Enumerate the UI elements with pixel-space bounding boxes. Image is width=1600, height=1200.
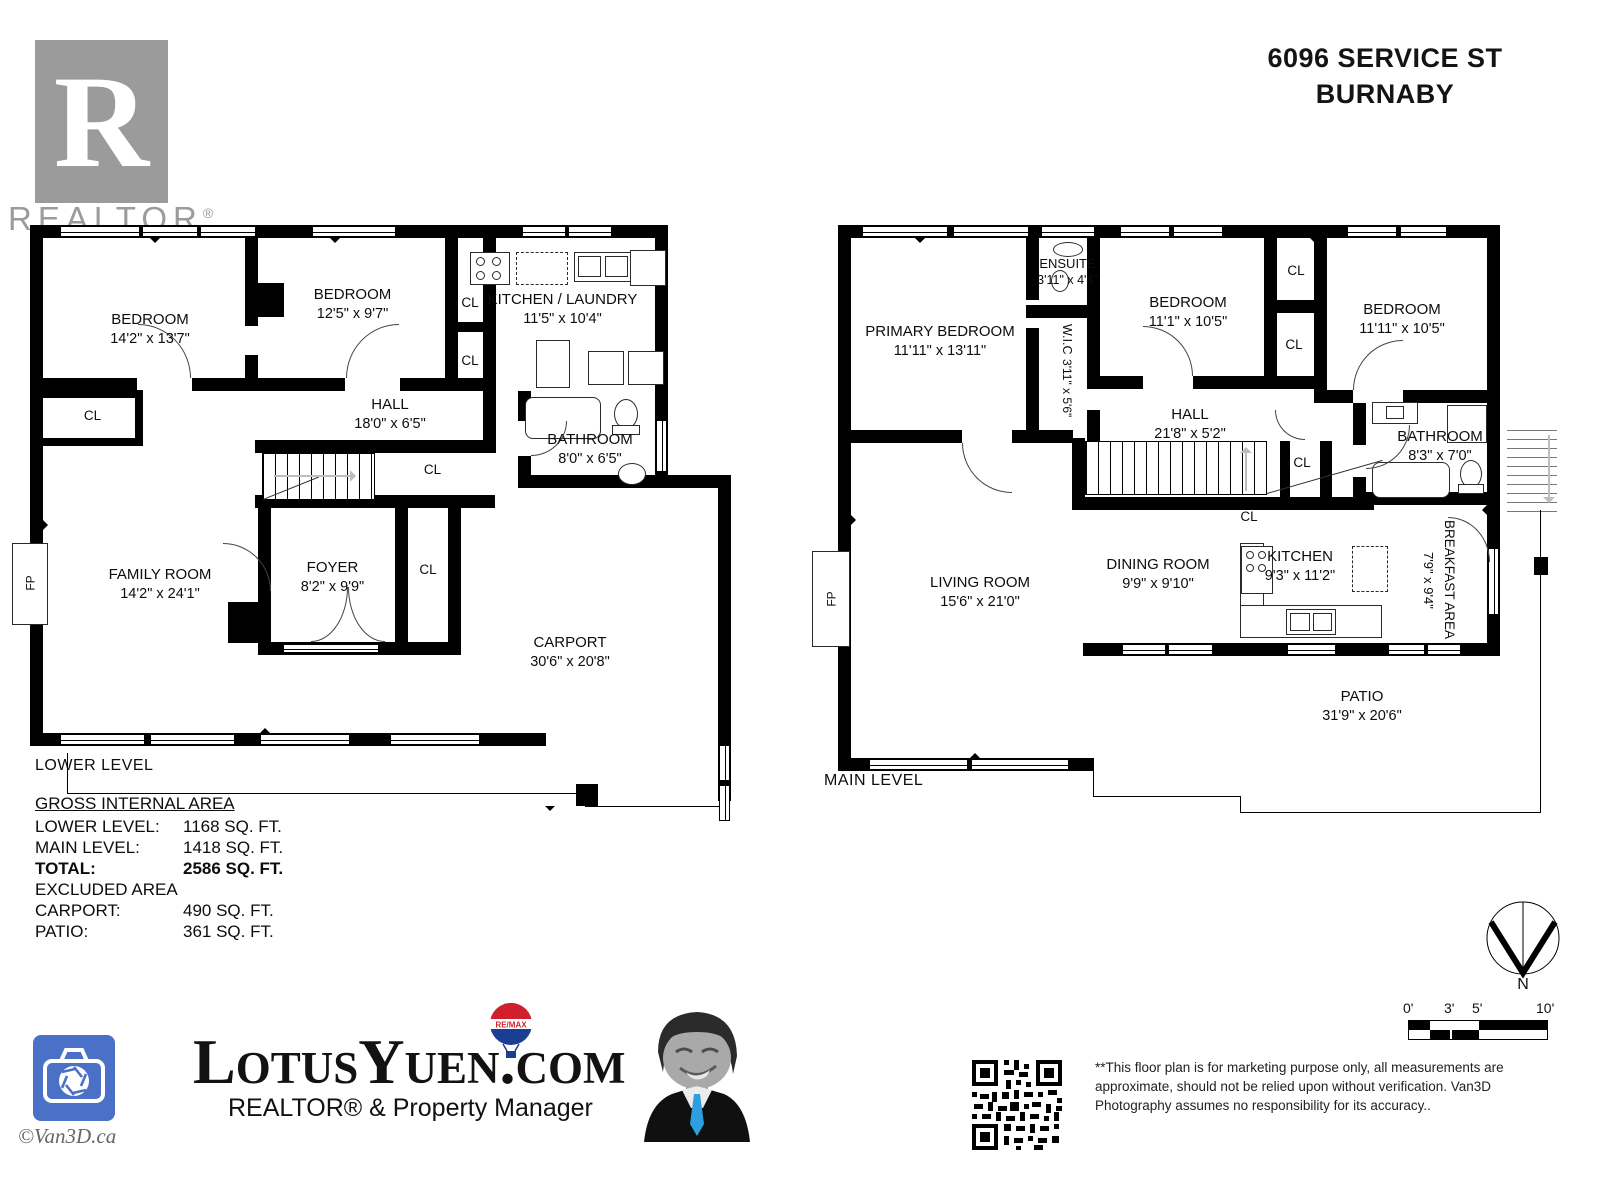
dimension-mark [43,520,53,530]
dimension-mark [851,515,861,525]
dimension-mark [915,238,925,248]
room-dims: 8'0" x 6'5" [520,450,660,469]
room-dims: 31'9" x 20'6" [1272,707,1452,726]
wall [1087,376,1143,389]
door-arc [1143,326,1193,376]
slab-outline [585,806,719,807]
remax-balloon-icon: RE/MAX [488,1002,534,1060]
room-dims: 30'6" x 20'8" [495,653,645,672]
door-arc [1353,340,1403,390]
washer [588,351,624,385]
stair-direction-arrow [1548,435,1550,497]
room-name: BATHROOM [1350,427,1530,447]
area-label: TOTAL: [35,858,183,879]
dimension-mark [545,806,555,816]
realtor-portrait [636,1008,758,1142]
room-name: ENSUITE [1020,255,1115,272]
window [1388,644,1425,655]
closet-wall [43,390,143,398]
window [312,226,396,237]
sink-basin [1386,406,1404,419]
area-row: LOWER LEVEL:1168 SQ. FT. [35,816,283,837]
registered-icon: ® [203,205,213,221]
scale-bar: 0' 3' 5' 10' [1408,1000,1558,1046]
stair-arrow-head [350,470,362,482]
room-name: HALL [325,395,455,415]
wall [1087,410,1100,443]
window [719,785,730,821]
window [1041,226,1095,237]
area-summary-heading: GROSS INTERNAL AREA [35,793,283,814]
window [200,226,256,237]
window [953,226,1029,237]
room-label-hall: HALL 21'8" x 5'2" [1105,405,1275,444]
fireplace: FP [12,543,48,625]
stair-direction-arrow [1245,449,1247,491]
wall-pillar [228,602,265,643]
dryer [628,351,664,385]
room-label-bathroom: BATHROOM 8'3" x 7'0" [1350,427,1530,466]
compass-rose [1481,898,1565,982]
patio-outline [1240,796,1241,813]
window [869,759,968,770]
logo-part-lotus: Lotus [193,1026,358,1097]
lower-level-caption: LOWER LEVEL [35,757,153,775]
room-name: CARPORT [495,633,645,653]
burner [492,257,501,266]
room-name: HALL [1105,405,1275,425]
room-dims: 12'5" x 9'7" [275,305,430,324]
closet-label: CL [403,562,453,577]
door-arc [346,324,399,378]
closet-wall [43,438,143,446]
area-row: CARPORT:490 SQ. FT. [35,900,283,921]
window [862,226,948,237]
disclaimer-text: **This floor plan is for marketing purpo… [1095,1058,1519,1115]
room-dims: 11'5" x 10'4" [455,310,670,329]
room-dims: 11'11" x 13'11" [850,342,1030,361]
room-label-foyer: FOYER 8'2" x 9'9" [275,558,390,597]
room-dims: 18'0" x 6'5" [325,415,455,434]
qr-code [972,1060,1062,1150]
sink-basin [578,256,601,277]
room-dims: 3'11" x 4'4" [1020,272,1115,289]
closet-label: CL [1272,263,1320,278]
counter [630,250,666,286]
window [150,734,235,745]
room-label-living-room: LIVING ROOM 15'6" x 21'0" [890,573,1070,612]
window [1122,644,1166,655]
scale-tick: 5' [1472,1000,1482,1016]
room-name: FAMILY ROOM [85,565,235,585]
van3d-caption: ©Van3D.ca [18,1124,116,1149]
closet-label: CL [1278,455,1326,470]
stove [470,252,510,285]
area-label: MAIN LEVEL: [35,837,183,858]
logo-part-yuen: Yuen [358,1026,499,1097]
dimension-mark [1477,505,1487,515]
window [522,226,566,237]
window [568,226,612,237]
scale-tick: 10' [1536,1000,1554,1016]
wall-post [576,784,598,806]
scale-segment [1479,1021,1547,1030]
room-dims: 11'11" x 10'5" [1312,320,1492,339]
main-level-caption: MAIN LEVEL [824,772,923,790]
window [1173,226,1223,237]
dimension-mark [260,723,270,733]
slab-outline [585,793,586,806]
window [60,734,145,745]
wall [838,430,962,443]
patio-post [1534,557,1548,575]
room-dims: 14'2" x 13'7" [75,330,225,349]
room-label-primary-bedroom: PRIMARY BEDROOM 11'11" x 13'11" [850,322,1030,361]
wall [483,378,496,453]
portrait-illustration [636,1008,758,1142]
room-label-bedroom: BEDROOM 11'11" x 10'5" [1312,300,1492,339]
area-value: 1418 SQ. FT. [183,838,283,857]
sink-basin [605,256,628,277]
page-title: 6096 SERVICE ST BURNABY [1190,40,1580,113]
dimension-mark [150,238,160,248]
room-dims: 15'6" x 21'0" [890,593,1070,612]
room-dims: 8'3" x 7'0" [1350,447,1530,466]
window [390,734,480,745]
room-name: PRIMARY BEDROOM [850,322,1030,342]
room-label-bedroom: BEDROOM 14'2" x 13'7" [75,310,225,349]
window [971,759,1069,770]
area-row: PATIO:361 SQ. FT. [35,921,283,942]
closet-label: CL [405,462,460,477]
room-name: BEDROOM [1098,293,1278,313]
room-name: W.I.C [1060,324,1074,355]
area-value: 361 SQ. FT. [183,922,274,941]
window [1120,226,1170,237]
title-address: 6096 SERVICE ST [1190,40,1580,76]
laundry-unit [536,340,570,388]
floorplan-sheet: { "title": {"line1": "6096 SERVICE ST", … [0,0,1600,1200]
remax-label: RE/MAX [495,1021,527,1030]
room-dims: 14'2" x 24'1" [85,585,235,604]
room-label-carport: CARPORT 30'6" x 20'8" [495,633,645,672]
room-label-patio: PATIO 31'9" x 20'6" [1272,687,1452,726]
closet-label: CL [1270,337,1318,352]
room-dims: 9'3" x 11'2" [1220,567,1380,586]
room-dims: 7'9" x 9'4" [1421,552,1436,609]
fireplace-label: FP [825,591,839,606]
title-city: BURNABY [1190,76,1580,112]
stair-direction-arrow [274,475,350,477]
area-label: CARPORT: [35,900,183,921]
area-value: 490 SQ. FT. [183,901,274,920]
burner [476,257,485,266]
area-row-total: TOTAL:2586 SQ. FT. [35,858,283,879]
burner [476,271,485,280]
area-label: PATIO: [35,921,183,942]
floorplan-main-level: FP PRIMARY BEDROOM 11'11" x 13'11" ENSUI… [820,225,1560,835]
closet-label: CL [445,295,495,310]
balloon-icon: RE/MAX [488,1002,534,1060]
room-dims: 8'2" x 9'9" [275,578,390,597]
window [719,745,730,781]
wall [1327,390,1353,403]
area-label: EXCLUDED AREA [35,879,183,900]
scale-tick: 0' [1403,1000,1413,1016]
room-label-bedroom: BEDROOM 11'1" x 10'5" [1098,293,1278,332]
patio-outline [1240,812,1541,813]
area-row: MAIN LEVEL:1418 SQ. FT. [35,837,283,858]
scale-bar-graphic [1408,1020,1548,1040]
area-value: 1168 SQ. FT. [183,817,282,836]
window [260,734,350,745]
scale-segment [1409,1021,1430,1030]
patio-outline [1093,771,1094,797]
room-dims: 21'8" x 5'2" [1105,425,1275,444]
window [1168,644,1213,655]
sink-basin [1290,613,1310,631]
van3d-camera-logo [33,1035,115,1121]
room-label-hall: HALL 18'0" x 6'5" [325,395,455,434]
window [142,226,198,237]
patio-outline [1540,510,1541,813]
room-name: LIVING ROOM [890,573,1070,593]
compass-icon [1481,898,1565,982]
scale-tick: 3' [1444,1000,1454,1016]
area-label: LOWER LEVEL: [35,816,183,837]
door-arc [962,443,1012,493]
realtor-logo-letter: R [54,56,149,188]
area-row: EXCLUDED AREA [35,879,283,900]
wall [30,225,43,746]
area-summary: GROSS INTERNAL AREA LOWER LEVEL:1168 SQ.… [35,793,283,942]
room-label-breakfast-area: BREAKFAST AREA 7'9" x 9'4" [1426,505,1460,655]
lotusyuen-logo: LotusYuen.com [193,1030,625,1094]
room-label-bedroom: BEDROOM 12'5" x 9'7" [275,285,430,324]
window [1347,226,1397,237]
closet-label: CL [445,353,495,368]
dimension-mark [970,748,980,758]
room-label-kitchen: KITCHEN 9'3" x 11'2" [1220,547,1380,586]
patio-outline [1093,796,1241,797]
room-name: BEDROOM [275,285,430,305]
camera-icon [33,1035,115,1121]
wall [255,440,495,453]
room-label-wic: W.I.C 3'11" x 5'6" [1048,313,1078,428]
fireplace-label: FP [24,575,38,590]
scale-segment [1452,1030,1479,1039]
closet-label: CL [65,408,120,423]
floorplan-lower-level: FP BEDROOM 14'2" x 13'7" BEDROOM 12'5" x… [30,225,770,825]
room-label-bathroom: BATHROOM 8'0" x 6'5" [520,430,660,469]
dimension-mark [330,238,340,248]
wall [400,378,496,391]
stair-arrow-head [1543,497,1555,509]
closet-label: CL [1225,509,1273,524]
room-name: BATHROOM [520,430,660,450]
wall [192,378,345,391]
toilet-tank [1458,484,1484,494]
wall [1264,376,1327,389]
bathtub [1372,462,1450,498]
north-label: N [1481,976,1565,994]
burner [492,271,501,280]
door-arc [1275,410,1305,440]
counter [516,252,568,285]
wall [1012,430,1073,443]
window [283,644,379,653]
area-value: 2586 SQ. FT. [183,859,283,878]
scale-segment [1430,1030,1450,1039]
sink-basin [1313,613,1332,631]
dimension-mark [1310,238,1320,248]
room-name: FOYER [275,558,390,578]
window [1400,226,1447,237]
room-name: KITCHEN [1220,547,1380,567]
window [60,226,140,237]
window [1287,644,1336,655]
room-dims: 3'11" x 5'6" [1060,359,1074,417]
room-label-family-room: FAMILY ROOM 14'2" x 24'1" [85,565,235,604]
room-name: PATIO [1272,687,1452,707]
room-name: BEDROOM [1312,300,1492,320]
wall [838,225,851,771]
realtor-logo: R [35,40,168,203]
wall [245,238,258,326]
room-name: BEDROOM [75,310,225,330]
qr-code-graphic [972,1060,1062,1150]
room-dims: 11'1" x 10'5" [1098,313,1278,332]
logo-tagline: REALTOR® & Property Manager [228,1094,593,1123]
room-name: BREAKFAST AREA [1442,520,1457,639]
fireplace: FP [812,551,850,647]
room-label-ensuite: ENSUITE 3'11" x 4'4" [1020,255,1115,289]
